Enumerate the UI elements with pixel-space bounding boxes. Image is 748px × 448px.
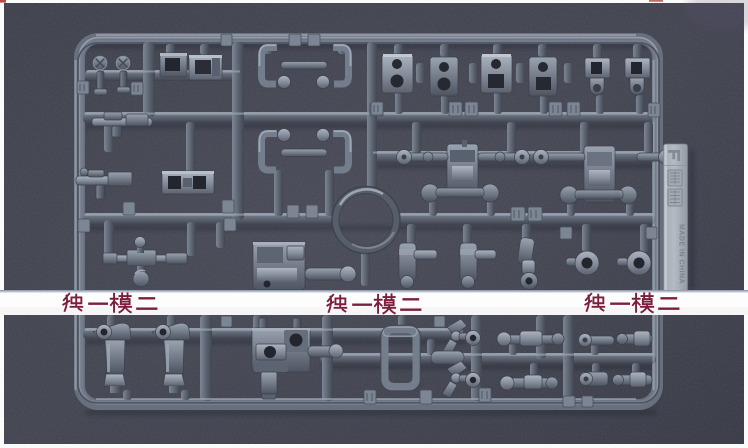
svg-text:MADE IN CHINA: MADE IN CHINA bbox=[678, 224, 685, 284]
